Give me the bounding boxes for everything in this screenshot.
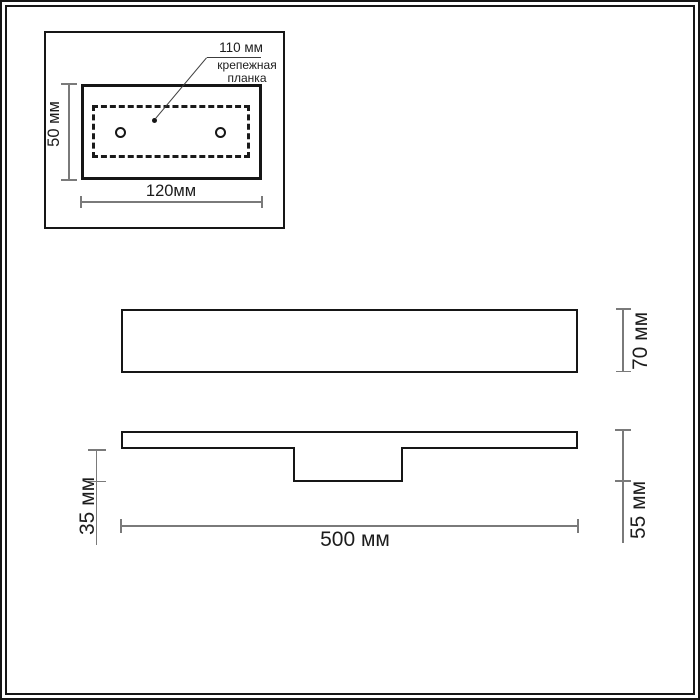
total-depth-dimension-line	[622, 430, 623, 543]
plate-height-dimension-line	[68, 84, 69, 180]
fixture-front-view	[121, 309, 578, 373]
box-depth-tick-top	[88, 449, 106, 450]
plate-height-tick-top	[61, 83, 77, 84]
front-height-dimension-line	[622, 309, 623, 372]
screw-hole-right	[215, 127, 226, 138]
front-height-label: 70 мм	[629, 306, 649, 376]
plate-width-tick-left	[80, 196, 81, 208]
fixture-width-dimension-line	[121, 525, 578, 526]
plate-height-label: 50 мм	[45, 94, 63, 154]
box-depth-label: 35 мм	[76, 471, 96, 541]
bracket-width-label: 110 мм	[206, 40, 276, 55]
screw-hole-left	[115, 127, 126, 138]
fixture-width-tick-left	[120, 519, 121, 533]
technical-drawing-page: 110 мм крепежная планка 50 мм 120мм 70 м…	[0, 0, 700, 700]
total-depth-tick-top	[615, 429, 631, 430]
plate-width-dimension-line	[81, 201, 262, 202]
plate-width-tick-right	[261, 196, 262, 208]
total-depth-label: 55 мм	[627, 475, 647, 545]
fixture-width-label: 500 мм	[290, 528, 420, 552]
plate-width-label: 120мм	[141, 182, 201, 201]
mounting-box	[293, 447, 403, 482]
fixture-width-tick-right	[577, 519, 578, 533]
bracket-name-label: крепежная планка	[205, 59, 289, 85]
plate-height-tick-bottom	[61, 179, 77, 180]
